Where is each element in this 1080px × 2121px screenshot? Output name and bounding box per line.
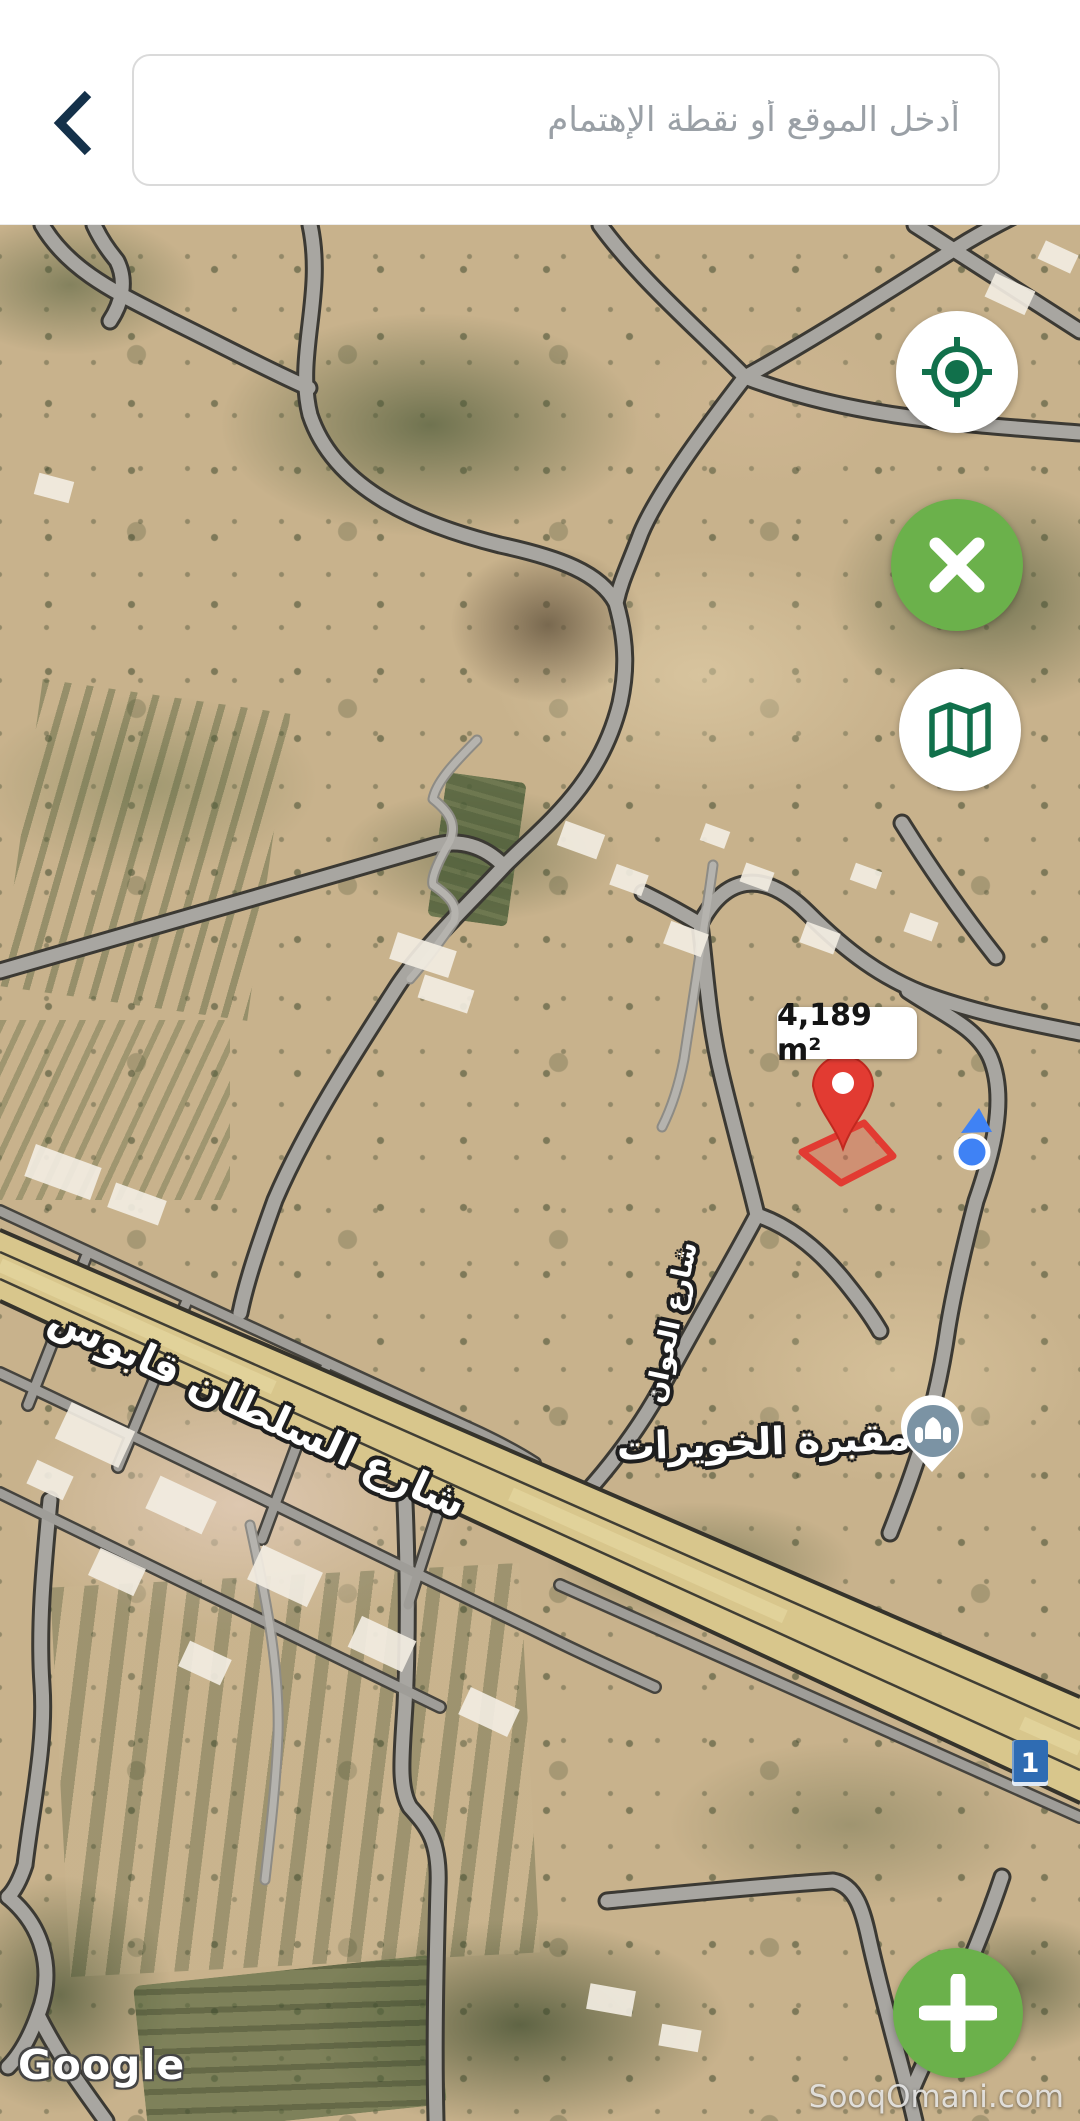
current-location-dot — [956, 1108, 992, 1168]
search-field-container — [132, 54, 1000, 186]
search-input[interactable] — [132, 54, 1000, 186]
google-attribution: Google — [18, 2041, 185, 2089]
close-icon — [926, 534, 988, 596]
cemetery-poi-marker — [901, 1395, 963, 1472]
location-heading-icon — [961, 1108, 992, 1133]
map-canvas[interactable]: شارع السلطان قابوس شارع العوان مقبرة الخ… — [0, 225, 1080, 2121]
markers-overlay — [0, 225, 1080, 2121]
locate-button[interactable] — [896, 311, 1018, 433]
add-listing-fab[interactable] — [893, 1948, 1023, 2078]
chevron-left-icon — [50, 88, 98, 158]
plus-icon — [919, 1974, 997, 2052]
map-type-button[interactable] — [899, 669, 1021, 791]
app-bar — [0, 0, 1080, 225]
area-tooltip: 4,189 m² — [777, 1007, 917, 1059]
my-location-icon — [920, 335, 994, 409]
map-layers-icon — [927, 701, 993, 759]
back-button[interactable] — [34, 80, 114, 168]
sooqomani-watermark: SooqOmani.com — [809, 2079, 1064, 2115]
app-screen: شارع السلطان قابوس شارع العوان مقبرة الخ… — [0, 0, 1080, 2121]
clear-selection-button[interactable] — [891, 499, 1023, 631]
